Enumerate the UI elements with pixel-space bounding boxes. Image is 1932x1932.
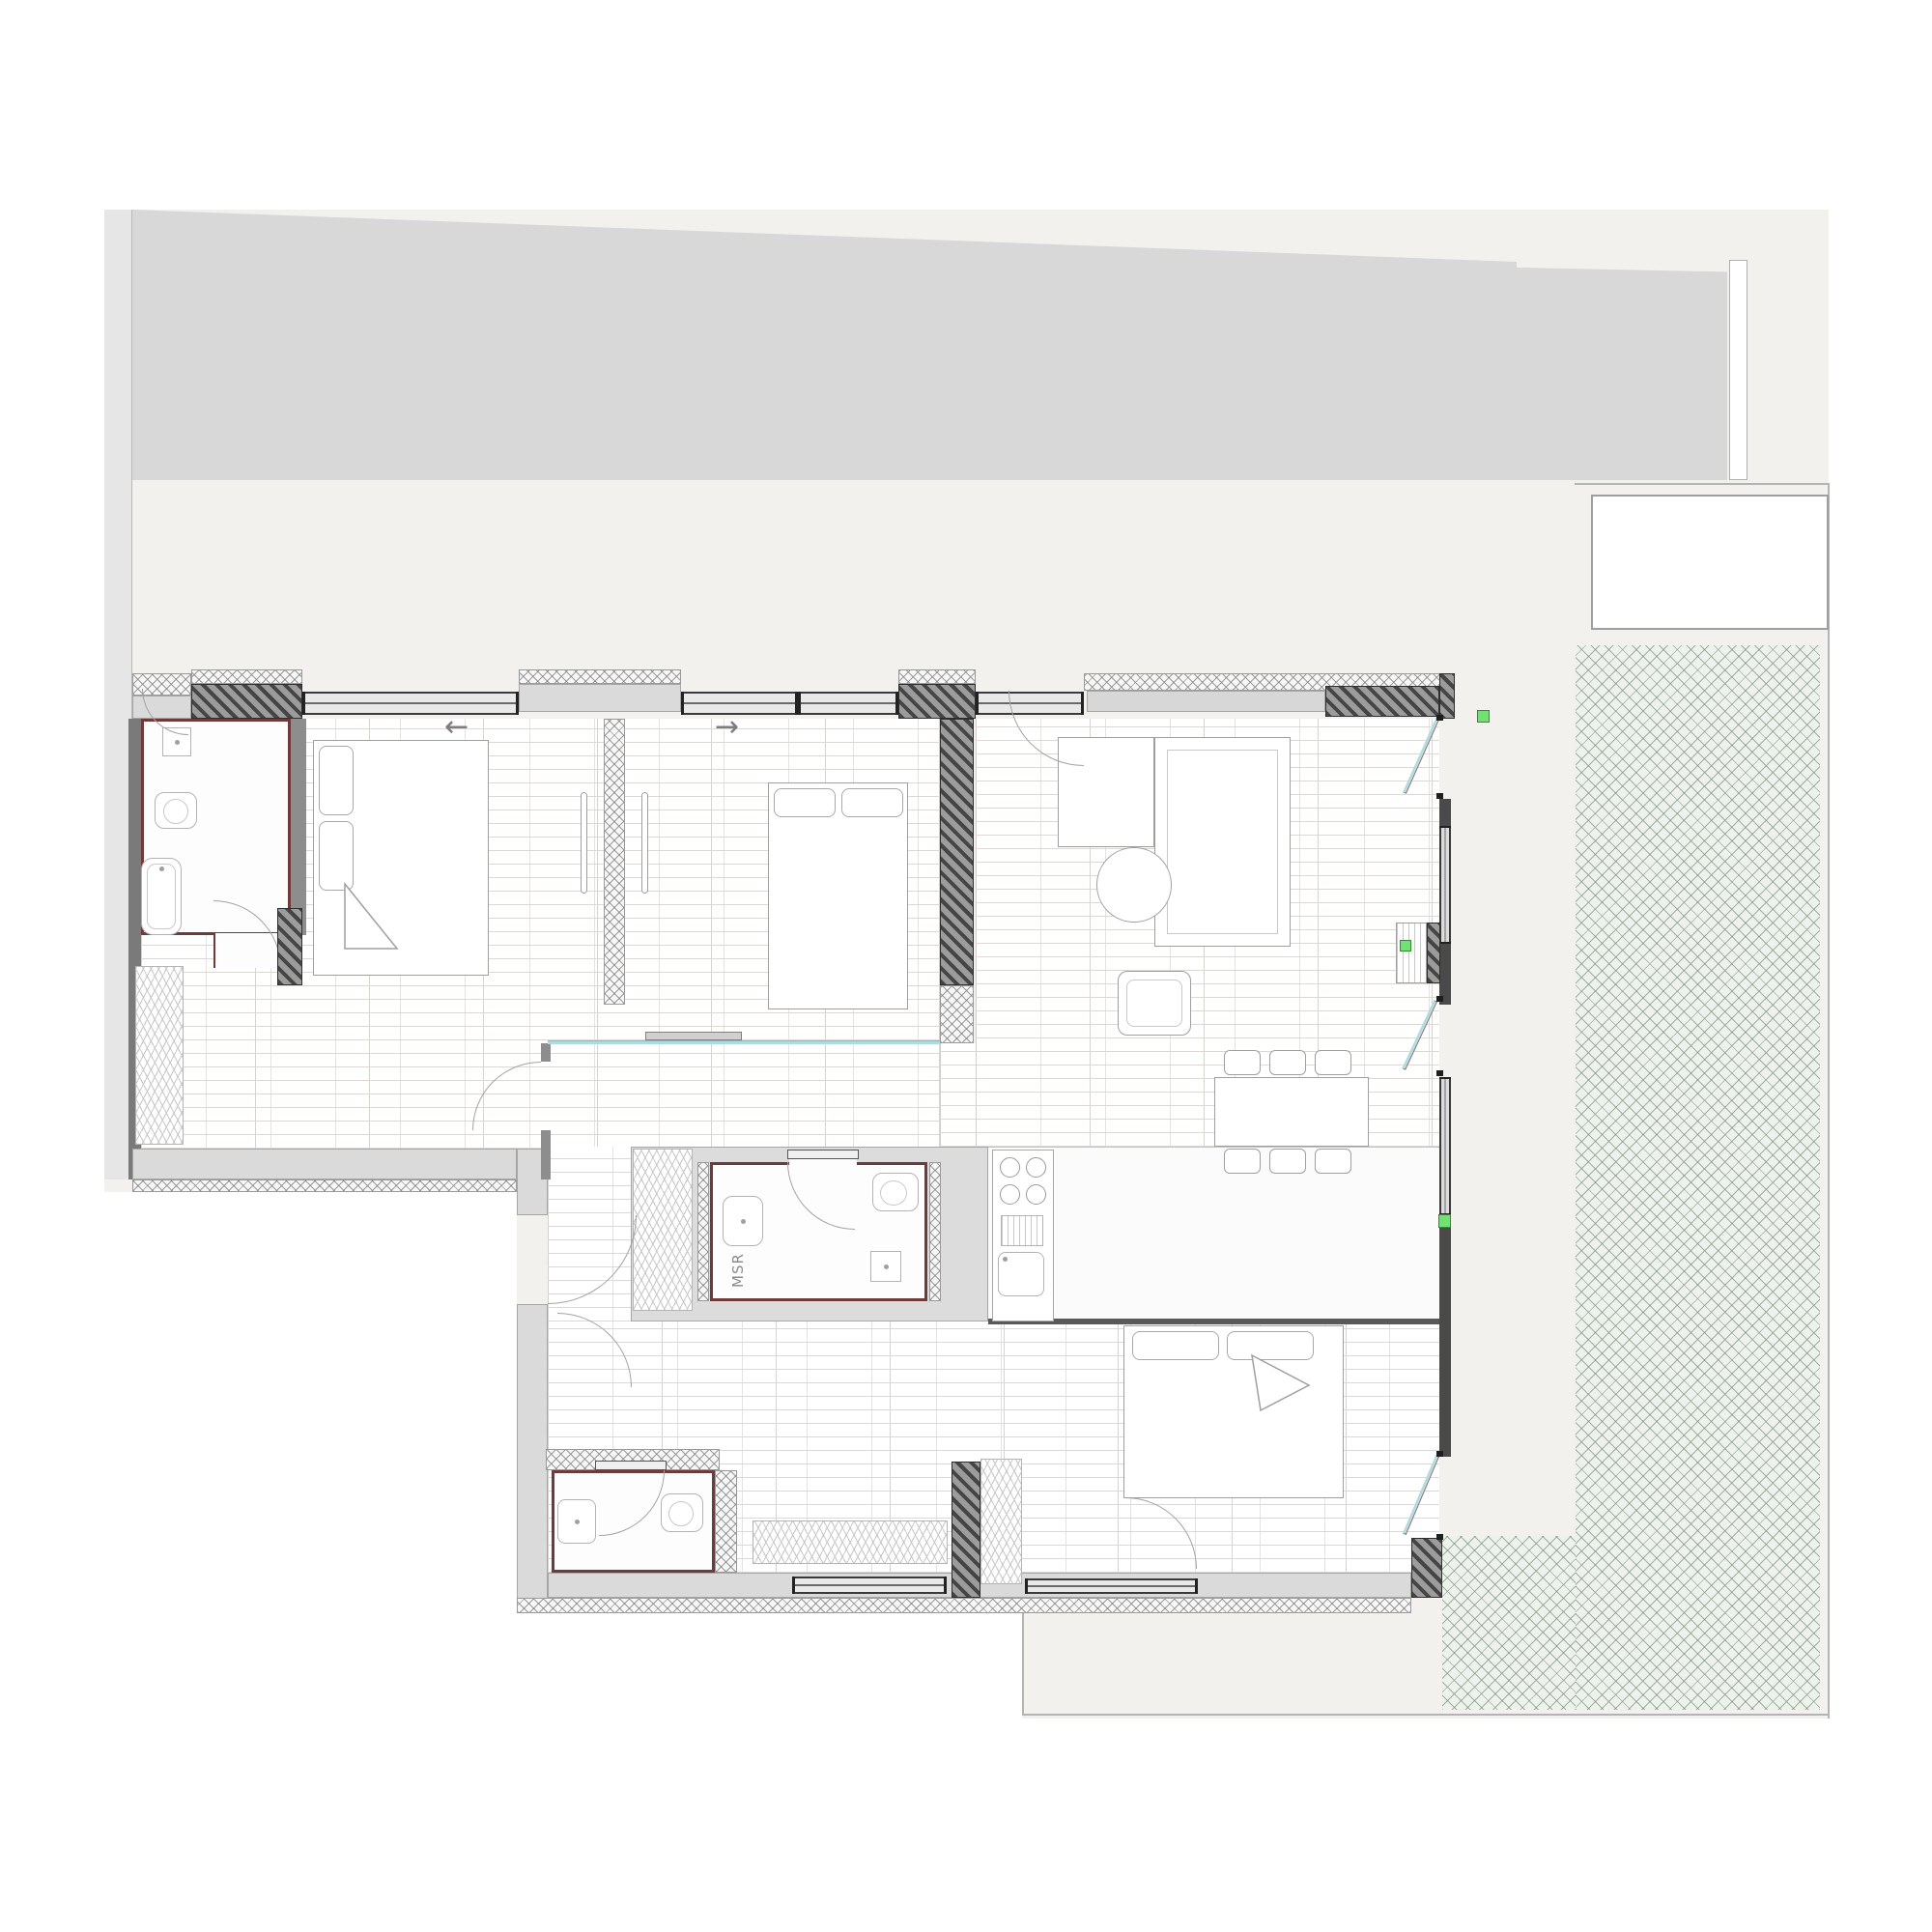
stove-burner	[1026, 1184, 1046, 1205]
window-east-dining	[1439, 1077, 1451, 1215]
coffee-table	[1096, 847, 1172, 923]
sensor-marker	[1400, 940, 1411, 952]
wall-structural	[191, 684, 302, 719]
blanket-fold-bedroom1	[344, 883, 400, 951]
dish-rack	[1001, 1215, 1043, 1246]
sideboard-living	[1087, 691, 1325, 712]
pillar-corner-se	[1411, 1538, 1442, 1598]
window-south-hall	[792, 1577, 947, 1594]
stove-burner	[1000, 1184, 1020, 1205]
toilet	[872, 1173, 919, 1211]
pillar-south	[952, 1462, 980, 1598]
stove-burner	[1026, 1157, 1046, 1178]
site-cut-south	[517, 1613, 1022, 1719]
dining-chair	[1315, 1050, 1351, 1075]
sliding-door-bedroom2	[645, 1032, 742, 1040]
cabinet-east-back	[1427, 923, 1440, 983]
washbasin	[723, 1196, 763, 1246]
wall-insulation	[191, 669, 302, 684]
wall-structural	[898, 684, 976, 719]
terrace-east	[1576, 645, 1820, 1710]
wall-structural	[1325, 686, 1439, 717]
closet-column	[633, 1149, 693, 1311]
blanket-fold-master	[1251, 1354, 1313, 1414]
wall-west-wing-south	[132, 1149, 517, 1179]
pillow	[841, 788, 903, 817]
dining-table	[1214, 1077, 1369, 1147]
pillow	[774, 788, 836, 817]
wardrobe-hall	[135, 966, 184, 1145]
wardrobe-south-vertical	[980, 1459, 1022, 1584]
dining-chair	[1269, 1050, 1306, 1075]
terrace-boundary-top	[1575, 483, 1829, 485]
window-bedroom1	[302, 692, 519, 715]
wall-insulation	[715, 1470, 737, 1573]
sensor-marker	[1438, 1214, 1451, 1228]
armchair	[1118, 971, 1191, 1036]
door-jamb	[1436, 996, 1443, 1002]
window-east-living	[1439, 826, 1451, 944]
sensor-marker	[1477, 710, 1490, 723]
pillar-bedroom2	[940, 719, 974, 985]
technical-room-label: MSR	[729, 1243, 745, 1288]
wardrobe-panel	[581, 792, 587, 894]
door-leaf-bathroom3	[595, 1461, 667, 1470]
door-jamb	[1436, 1534, 1443, 1540]
glass-partition-bedroom2	[548, 1040, 940, 1044]
wall-insulation	[519, 669, 681, 684]
dining-chair	[1224, 1050, 1261, 1075]
dining-chair	[1269, 1149, 1306, 1174]
pillow	[319, 746, 354, 815]
stove-burner	[1000, 1157, 1020, 1178]
pillar-hall	[277, 908, 302, 985]
shower-drain	[870, 1251, 901, 1282]
pillar-bedroom2-base	[940, 985, 974, 1043]
bathtub	[141, 858, 182, 935]
wall-corner-ne	[1439, 673, 1455, 719]
window-slide-arrow-right: →	[715, 713, 739, 742]
kitchen-sink	[998, 1252, 1044, 1296]
window-bedroom2	[681, 692, 798, 715]
terrace-void	[1591, 495, 1829, 630]
wall-corridor-b	[541, 1130, 551, 1179]
site-cut-west	[104, 1192, 517, 1719]
terrace-boundary-right	[1828, 483, 1830, 1719]
terrace-south	[1442, 1536, 1576, 1710]
wall-kitchen-bedroom	[988, 1319, 1439, 1324]
wall-corridor-a	[541, 1043, 551, 1062]
wall-east-3	[1439, 1215, 1451, 1457]
wall-sill-mid	[519, 684, 681, 712]
neighbor-building-edge	[1729, 260, 1747, 480]
wall-insulation	[898, 669, 976, 684]
wall-insulation-south	[517, 1598, 1411, 1613]
door-jamb	[1436, 793, 1443, 799]
window-slide-arrow-left: ←	[444, 713, 469, 742]
floor-plan-canvas: MSR ← →	[0, 0, 1932, 1932]
washbasin	[557, 1499, 596, 1544]
terrace-boundary-bottom	[1022, 1714, 1830, 1716]
window-south-bedroom	[1025, 1578, 1198, 1594]
door-jamb	[1436, 1070, 1443, 1076]
toilet	[155, 792, 197, 829]
wall-east-1	[1439, 799, 1451, 826]
pillow	[319, 821, 354, 891]
floor-passage	[940, 1043, 976, 1147]
terrace-boundary-left	[1022, 1598, 1024, 1714]
toilet	[661, 1493, 703, 1532]
dining-chair	[1224, 1149, 1261, 1174]
wall-insulation	[132, 1179, 517, 1192]
wall-insulation	[697, 1162, 709, 1301]
wall-wing-west-b	[517, 1304, 548, 1613]
door-jamb	[1436, 1451, 1443, 1457]
wardrobe-south	[753, 1520, 948, 1564]
partition-bedrooms	[604, 719, 625, 1005]
door-leaf-bathroom2	[787, 1150, 859, 1159]
wall-insulation	[929, 1162, 941, 1301]
dining-chair	[1315, 1149, 1351, 1174]
door-jamb	[1436, 715, 1443, 721]
wall-bath1-bedroom1	[291, 719, 306, 935]
floor-kitchen	[988, 1147, 1439, 1321]
pillow	[1132, 1331, 1219, 1360]
sofa	[1154, 737, 1291, 947]
window-bedroom2-b	[798, 692, 898, 715]
wardrobe-panel	[641, 792, 648, 894]
cabinet-east	[1396, 923, 1427, 983]
